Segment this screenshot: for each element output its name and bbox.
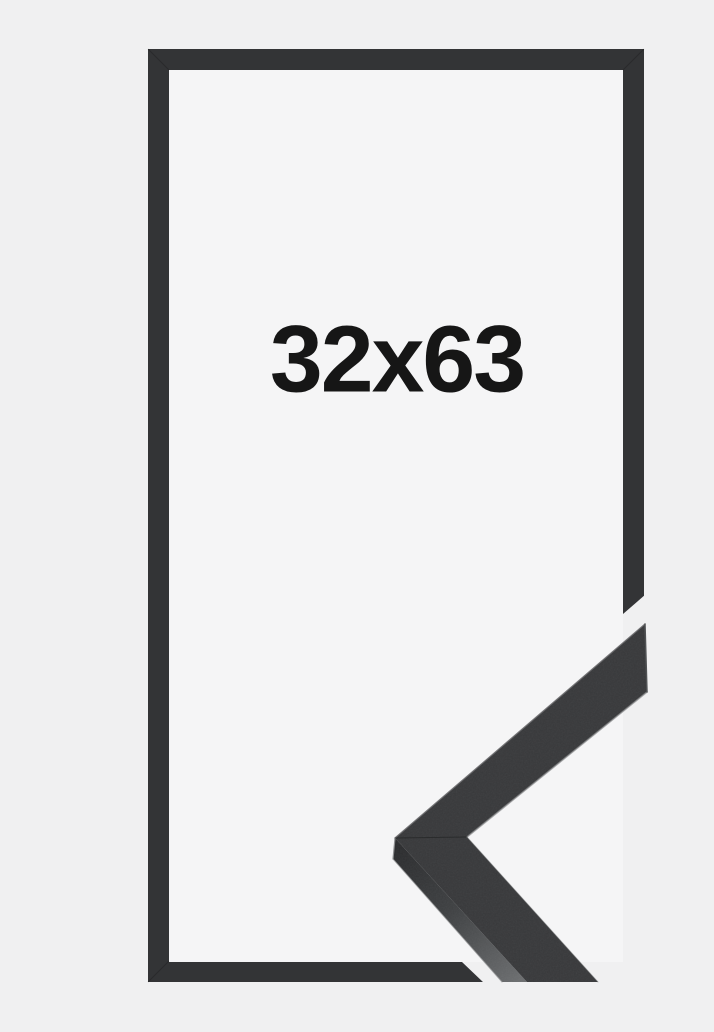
frame-size-label: 32x63 — [40, 313, 714, 408]
frame-inner-area — [169, 70, 623, 962]
product-image-frame: 32x63 — [40, 16, 714, 1016]
frame-graphic — [40, 16, 714, 1016]
